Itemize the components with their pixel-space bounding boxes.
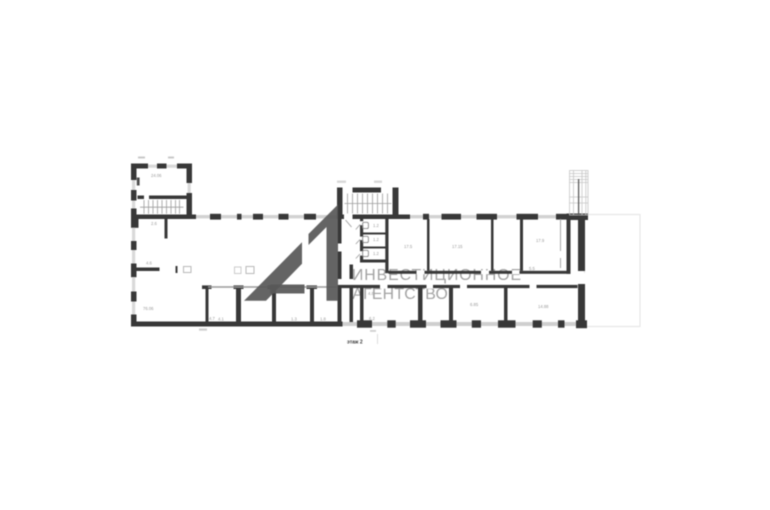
svg-text:1.8: 1.8 xyxy=(320,317,326,322)
svg-text:6.85: 6.85 xyxy=(470,302,479,307)
svg-text:1.2: 1.2 xyxy=(373,223,379,228)
svg-text:АГЕНТСТВО: АГЕНТСТВО xyxy=(352,286,448,303)
svg-text:17.9: 17.9 xyxy=(536,238,545,243)
svg-text:76.06: 76.06 xyxy=(143,306,154,311)
svg-text:1.3: 1.3 xyxy=(291,317,297,322)
svg-text:5.5: 5.5 xyxy=(529,266,535,271)
svg-text:14.88: 14.88 xyxy=(538,304,549,309)
svg-text:17.5: 17.5 xyxy=(404,244,413,249)
svg-text:1.2: 1.2 xyxy=(373,237,379,242)
svg-text:4.1: 4.1 xyxy=(218,317,224,322)
svg-text:2.6: 2.6 xyxy=(151,221,157,226)
svg-text:4.6: 4.6 xyxy=(146,261,152,266)
svg-text:4.7: 4.7 xyxy=(209,316,215,321)
svg-text:ИНВЕСТИЦИОННОЕ: ИНВЕСТИЦИОННОЕ xyxy=(352,267,521,284)
svg-text:4.8: 4.8 xyxy=(368,291,374,296)
svg-text:1.2: 1.2 xyxy=(373,251,379,256)
svg-text:этаж 2: этаж 2 xyxy=(347,340,363,346)
svg-text:6.2: 6.2 xyxy=(369,316,375,321)
svg-text:24.06: 24.06 xyxy=(151,173,162,178)
svg-text:17.15: 17.15 xyxy=(452,244,463,249)
